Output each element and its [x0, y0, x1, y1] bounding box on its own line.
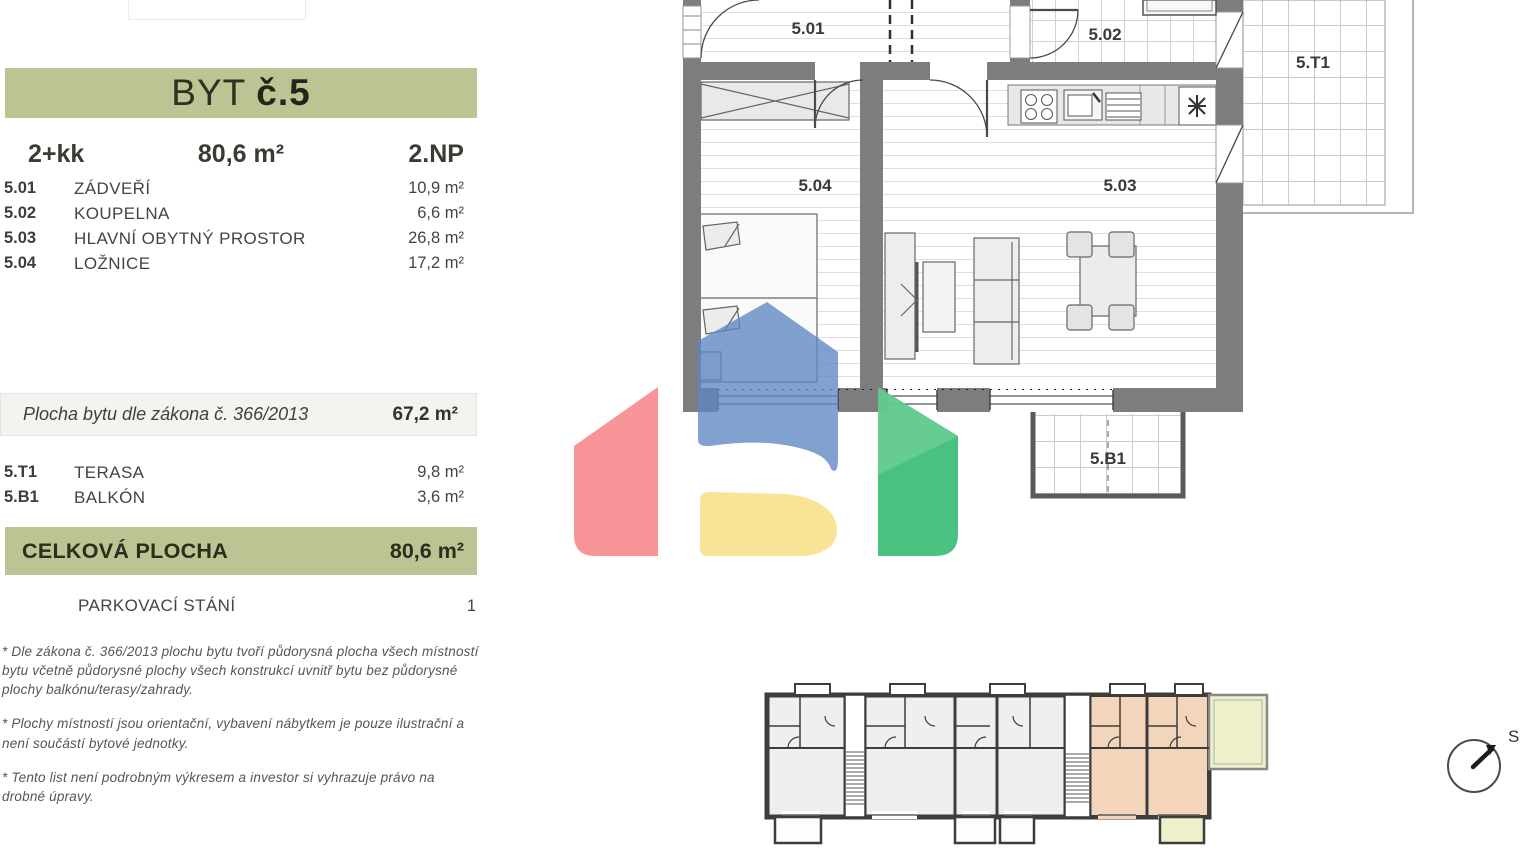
exterior-table: 5.T1 TERASA 9,8 m² 5.B1 BALKÓN 3,6 m² [0, 460, 482, 510]
building-overview-plan [740, 682, 1310, 857]
chair [1109, 232, 1134, 257]
overview-balconies [775, 817, 1204, 843]
table-row: 5.02 KOUPELNA 6,6 m² [0, 201, 482, 226]
room-area: 10,9 m² [408, 179, 482, 198]
north-label: S [1508, 727, 1519, 746]
tv-cabinet [885, 233, 915, 359]
chair [1067, 232, 1092, 257]
compass: S [1436, 710, 1536, 810]
footnote-2: * Plochy místností jsou orientační, vyba… [2, 714, 480, 752]
stove [1021, 90, 1057, 123]
table-row: 5.B1 BALKÓN 3,6 m² [0, 485, 482, 510]
table-row: 5.04 LOŽNICE 17,2 m² [0, 251, 482, 276]
entry-hall-floor [700, 0, 1010, 62]
parking-value: 1 [467, 597, 482, 616]
room-code: 5.03 [0, 229, 74, 248]
room-area: 6,6 m² [417, 204, 482, 223]
balcony-door [990, 390, 1113, 410]
chair [1067, 305, 1092, 330]
bedroom-window [718, 390, 838, 410]
room-label-503: 5.03 [1103, 176, 1136, 195]
table-row: 5.03 HLAVNÍ OBYTNÝ PROSTOR 26,8 m² [0, 226, 482, 251]
law-area-row: Plocha bytu dle zákona č. 366/2013 67,2 … [0, 393, 477, 436]
room-area: 26,8 m² [408, 229, 482, 248]
highlighted-terrace [1209, 695, 1267, 769]
bathtub [1143, 0, 1216, 15]
unit-title-number: č.5 [256, 72, 310, 114]
unit-summary-row: 2+kk 80,6 m² 2.NP [0, 140, 482, 170]
floor-plan-drawing: 5.01 5.02 5.T1 5.04 5.03 5.B1 [665, 0, 1455, 675]
room-code: 5.B1 [0, 488, 74, 507]
room-code: 5.04 [0, 254, 74, 273]
total-area-banner: CELKOVÁ PLOCHA 80,6 m² [5, 527, 477, 575]
parking-label: PARKOVACÍ STÁNÍ [0, 596, 235, 616]
room-name: LOŽNICE [74, 254, 408, 274]
room-area: 9,8 m² [417, 463, 482, 482]
room-code: 5.T1 [0, 463, 74, 482]
room-area: 3,6 m² [417, 488, 482, 507]
law-area-label: Plocha bytu dle zákona č. 366/2013 [1, 404, 308, 425]
room-name: KOUPELNA [74, 204, 417, 224]
terrace-floor [1243, 0, 1385, 205]
room-label-502: 5.02 [1088, 25, 1121, 44]
chair [1109, 305, 1134, 330]
living-room-floor [883, 80, 1216, 388]
logo-red-shape [574, 387, 658, 556]
law-area-value: 67,2 m² [393, 404, 476, 426]
room-code: 5.01 [0, 179, 74, 198]
room-code: 5.02 [0, 204, 74, 223]
room-name: TERASA [74, 463, 417, 483]
room-name: BALKÓN [74, 488, 417, 508]
unit-title-banner: BYT č.5 [5, 68, 477, 118]
room-area: 17,2 m² [408, 254, 482, 273]
room-table: 5.01 ZÁDVEŘÍ 10,9 m² 5.02 KOUPELNA 6,6 m… [0, 176, 482, 276]
parking-row: PARKOVACÍ STÁNÍ 1 [0, 592, 482, 620]
room-label-b1: 5.B1 [1090, 449, 1126, 468]
room-name: HLAVNÍ OBYTNÝ PROSTOR [74, 229, 408, 249]
table-row: 5.T1 TERASA 9,8 m² [0, 460, 482, 485]
room-name: ZÁDVEŘÍ [74, 179, 408, 199]
footnote-3: * Tento list není podrobným výkresem a i… [2, 768, 480, 806]
living-window [887, 390, 937, 410]
footnote-1: * Dle zákona č. 366/2013 plochu bytu tvo… [2, 642, 480, 699]
table-row: 5.01 ZÁDVEŘÍ 10,9 m² [0, 176, 482, 201]
total-area-label: CELKOVÁ PLOCHA [5, 539, 228, 564]
room-label-t1: 5.T1 [1296, 53, 1330, 72]
total-area-value: 80,6 m² [390, 539, 477, 564]
footnotes: * Dle zákona č. 366/2013 plochu bytu tvo… [2, 642, 480, 821]
unit-title-prefix: BYT [171, 72, 246, 114]
floor-number: 2.NP [408, 140, 464, 169]
kitchen-drawers [1106, 93, 1141, 120]
room-label-504: 5.04 [798, 176, 832, 195]
room-label-501: 5.01 [791, 19, 824, 38]
kitchen-counter [1008, 85, 1216, 125]
unit-info-panel: BYT č.5 2+kk 80,6 m² 2.NP 5.01 ZÁDVEŘÍ 1… [0, 0, 482, 864]
coffee-table [923, 262, 955, 332]
